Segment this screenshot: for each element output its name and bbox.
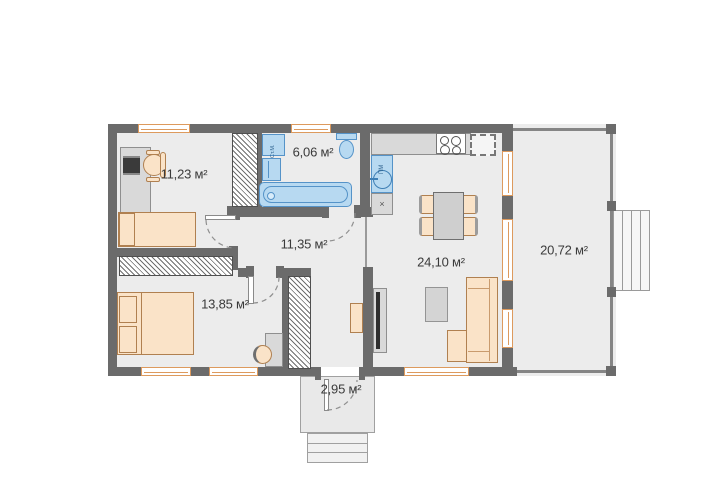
terrace-post [607,201,616,211]
pillow [119,296,137,323]
kitchen-unit: × [371,193,393,215]
dishwasher-label: ПМ [379,148,385,174]
tv [376,292,380,349]
sofa [466,277,498,363]
coffee-table [425,287,448,322]
pillow [119,326,137,353]
window [502,309,513,348]
terrace-wall [513,128,609,131]
pillow [119,213,135,246]
terrace-post [607,287,616,297]
porch-steps [307,433,368,463]
door-jamb [315,367,321,380]
room-label-bedroom: 13,85 м² [201,297,249,312]
terrace-post [606,366,616,376]
sofa-chaise [447,330,467,362]
terrace-door-window [502,219,513,281]
hallway-bench [350,303,363,333]
dining-table [433,192,464,240]
room-label-hallway: 11,35 м² [281,237,328,252]
wall-segment [240,207,327,217]
floor-plan: Ст.М. ПМ × 11,23 м² 6, [0,0,701,502]
window [502,151,513,196]
terrace-post [606,124,616,134]
window [404,367,469,376]
bathtub [259,182,352,207]
toilet-tank [336,133,357,140]
room-label-office: 11,23 м² [161,167,208,182]
computer [123,156,140,175]
toilet [339,140,354,159]
room-label-bathroom: 6,06 м² [293,145,334,160]
terrace-post [508,367,517,376]
terrace-steps [613,210,650,291]
washing-machine-label: Ст.М. [270,128,276,158]
stove [436,133,466,154]
room-label-porch: 2,95 м² [321,382,362,397]
door-jamb [354,205,361,218]
stool [253,345,272,364]
terrace-wall [610,128,613,373]
wall-segment [363,267,373,367]
open-passage-line [365,217,367,267]
bed-blanket-line [141,293,142,354]
door-jamb [359,367,365,380]
office-chair-armrest [146,177,160,182]
wardrobe [119,256,233,276]
window [209,367,258,376]
entrance-door-opening [319,367,360,376]
door-leaf [205,215,236,220]
wall-segment [360,133,370,207]
window [138,124,190,133]
wardrobe [288,276,311,369]
room-label-terrace: 20,72 м² [540,243,588,258]
door-jamb [276,266,284,278]
room-label-living-kitchen: 24,10 м² [417,255,465,270]
fridge [470,134,496,156]
bathroom-sink [262,158,281,181]
window [291,124,331,133]
wardrobe [232,133,258,207]
terrace-wall [513,370,613,373]
window [141,367,191,376]
